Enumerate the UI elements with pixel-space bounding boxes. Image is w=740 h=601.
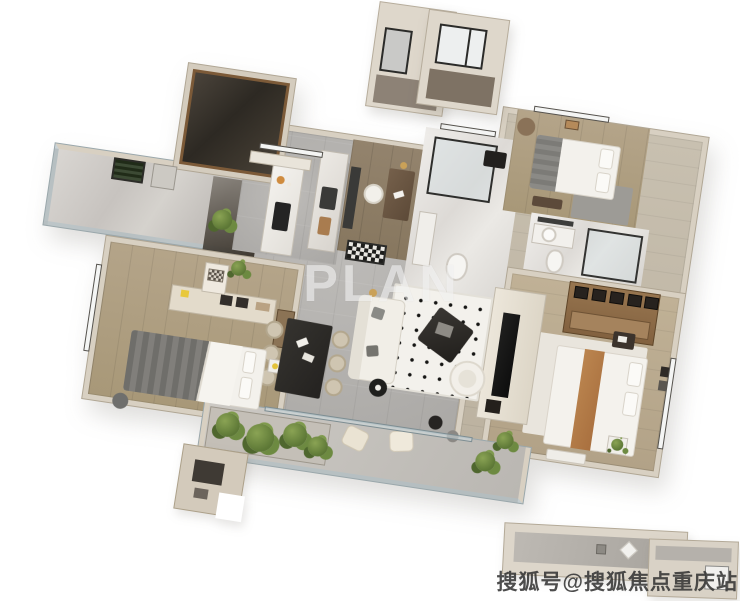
- kitchen-sink: [319, 186, 338, 210]
- glass-shower: [426, 136, 498, 203]
- storage-box: [220, 294, 233, 306]
- apartment-3d-floor-plan: [9, 7, 715, 522]
- storage-box: [235, 297, 248, 309]
- storage-box: [644, 296, 660, 310]
- storage-box: [596, 544, 607, 555]
- nightstand: [612, 331, 636, 350]
- glass-shower: [581, 228, 643, 284]
- window: [435, 23, 488, 69]
- pillow: [594, 172, 611, 194]
- sohu-watermark: 搜狐号@搜狐焦点重庆站: [497, 566, 738, 596]
- platform-floor: [655, 546, 731, 563]
- window: [379, 27, 413, 74]
- wall-notch: [215, 492, 245, 522]
- exterior-wall-fragment: [173, 443, 249, 519]
- utility-panel: [150, 163, 177, 190]
- wall-art: [564, 120, 579, 131]
- platform-floor: [426, 68, 496, 107]
- storage-box: [591, 288, 607, 302]
- equipment-platform-north-2: [416, 9, 511, 115]
- shower-mat: [483, 150, 507, 169]
- decor-tray: [207, 268, 225, 282]
- wall-opening: [192, 459, 225, 485]
- storage-box: [574, 286, 590, 300]
- speaker: [485, 399, 502, 414]
- sofa-pillow: [366, 345, 379, 357]
- pillow: [598, 148, 615, 170]
- floor-pouf: [389, 430, 414, 452]
- shelf-decor: [180, 290, 189, 298]
- washing-machine: [111, 157, 146, 183]
- wall-opening: [193, 488, 208, 500]
- storage-box: [609, 291, 625, 305]
- storage-box: [627, 294, 643, 308]
